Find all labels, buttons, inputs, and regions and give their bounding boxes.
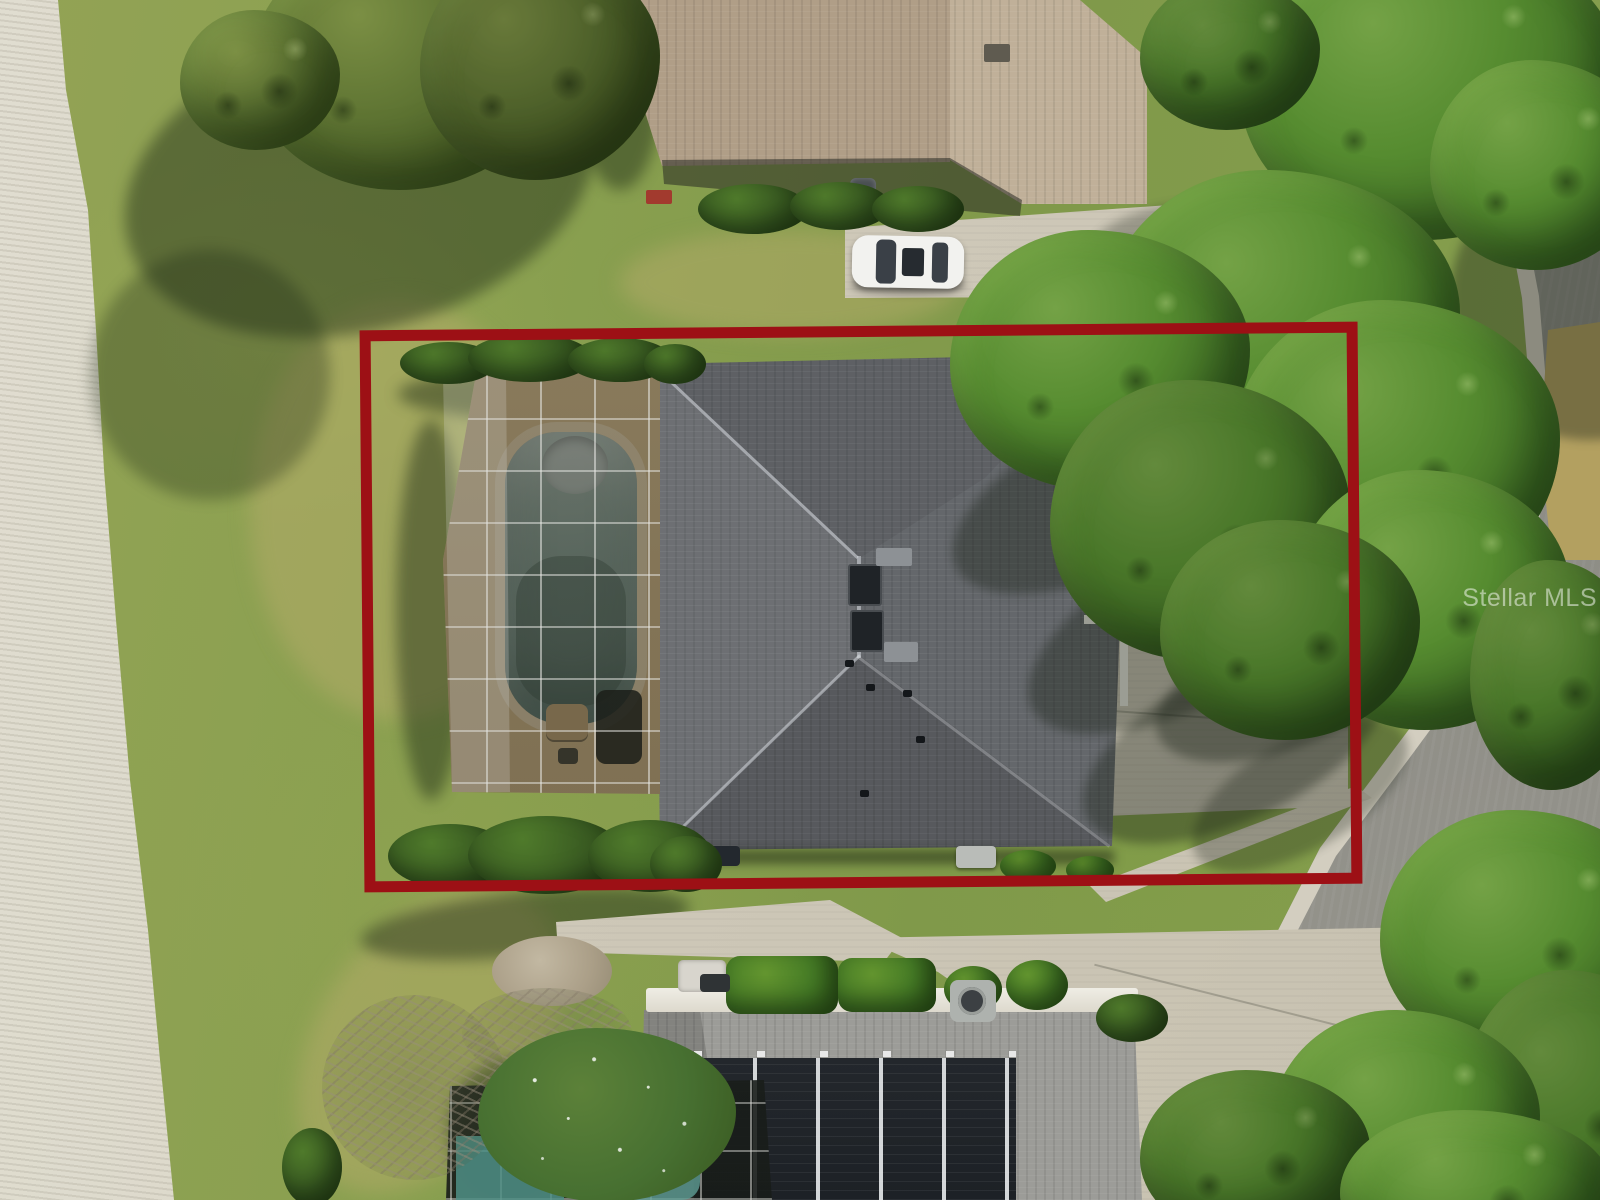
mls-watermark: Stellar MLS (1462, 584, 1597, 613)
aerial-photo: Stellar MLS (0, 0, 1600, 1200)
small-bush-bottom-left (282, 1128, 342, 1200)
hedge-neighbor-top-3 (872, 186, 964, 232)
shrub-bottom-right (1096, 994, 1168, 1042)
ac-fan (958, 987, 986, 1015)
grill (700, 974, 730, 992)
car-windshield (876, 239, 897, 283)
flowering-bush (478, 1028, 736, 1200)
bare-branch-tree (322, 995, 507, 1180)
hedge-bottom-house-2 (838, 958, 936, 1012)
neighbor-roof-vent (984, 44, 1010, 62)
tree-shadow-on-lawn-2 (90, 250, 330, 500)
red-mat (646, 190, 672, 204)
white-car (852, 235, 965, 289)
car-sunroof (902, 248, 924, 276)
hedge-bottom-house (726, 956, 838, 1014)
solar-mount-row (694, 1051, 1016, 1057)
hedge-bottom-house-4 (1006, 960, 1068, 1010)
property-boundary-outline (360, 322, 1363, 893)
car-rear-window (932, 242, 949, 282)
